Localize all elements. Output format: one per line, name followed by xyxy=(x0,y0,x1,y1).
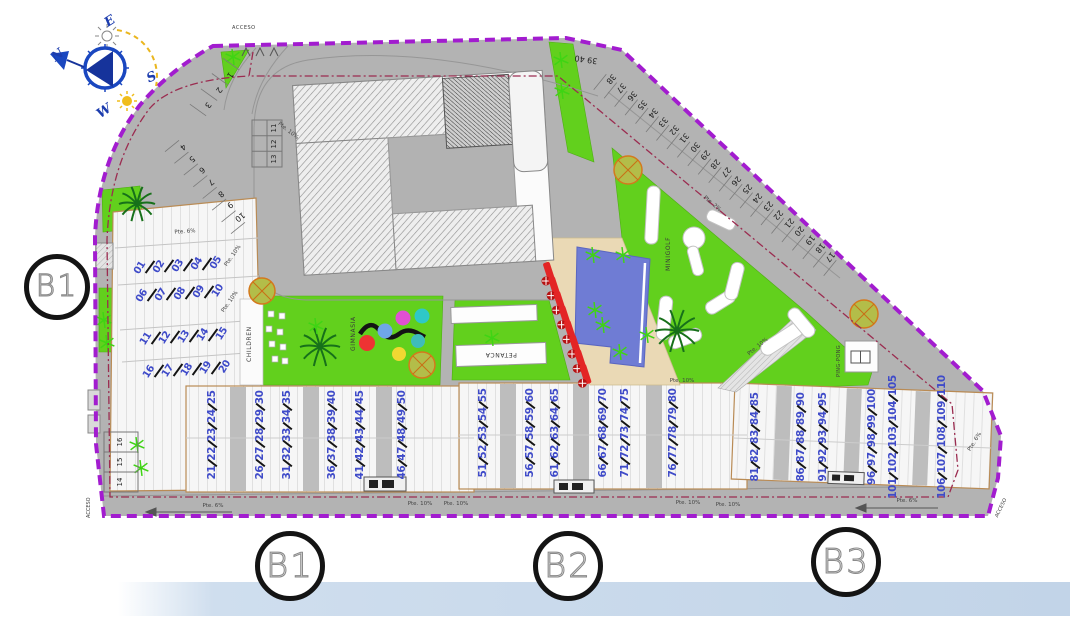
bottom-shadow-band xyxy=(118,582,1070,616)
site-plan-drawing xyxy=(0,0,1070,620)
building-wing xyxy=(508,70,548,172)
central-building xyxy=(293,70,554,275)
north-arrow xyxy=(50,51,69,70)
compass-rose xyxy=(50,24,157,111)
sun-icon xyxy=(117,91,137,111)
dark-roof-section xyxy=(442,74,512,148)
ping-pong-table xyxy=(845,341,878,372)
site-plan-canvas: ACCESO ACCESO ACCESO CHILDREN GIMNASIA P… xyxy=(0,0,1070,620)
sun-outline-icon xyxy=(95,24,119,48)
townhouse-rows xyxy=(186,383,993,492)
